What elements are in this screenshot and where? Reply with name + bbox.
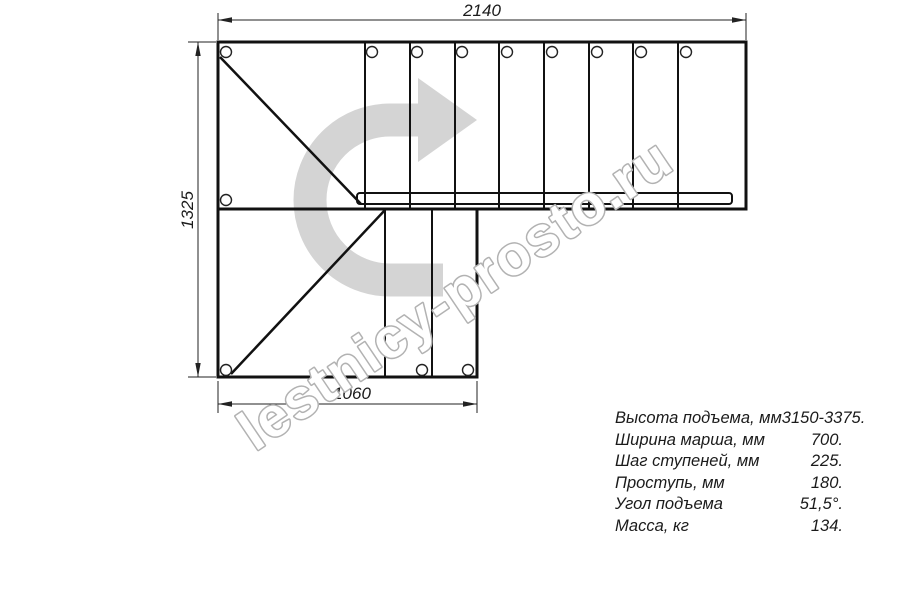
dim-arrow-icon (218, 401, 232, 406)
dimension-arrowheads (195, 17, 746, 406)
spec-value: 225. (811, 451, 843, 473)
dim-arrow-icon (218, 17, 232, 22)
spec-label: Проступь, мм (615, 473, 725, 495)
fastener-circle (502, 47, 513, 58)
fastener-circle (221, 195, 232, 206)
fastener-circle (412, 47, 423, 58)
fastener-circle (463, 365, 474, 376)
fastener-circle (221, 365, 232, 376)
dimension-lines (188, 13, 746, 413)
stair-plan-page: 2140 1325 1060 lestnicy-prosto.ru Высота… (0, 0, 900, 600)
spec-value: 51,5°. (800, 494, 843, 516)
fastener-circle (417, 365, 428, 376)
fastener-circle (457, 47, 468, 58)
spec-value: 700. (811, 430, 843, 452)
spec-row-flight-width: Ширина марша, мм 700. (615, 430, 843, 452)
spec-value: 134. (811, 516, 843, 538)
spec-row-mass: Масса, кг 134. (615, 516, 843, 538)
fastener-circle (592, 47, 603, 58)
turn-direction-arrow (310, 78, 477, 280)
turn-arrow-head-icon (418, 78, 477, 162)
spec-row-tread: Проступь, мм 180. (615, 473, 843, 495)
spec-label: Высота подъема, мм (615, 408, 782, 430)
spec-table: Высота подъема, мм 3150-3375. Ширина мар… (615, 408, 843, 538)
dimension-label-top: 2140 (462, 1, 501, 20)
spec-label: Масса, кг (615, 516, 689, 538)
spec-row-climb-angle: Угол подъема 51,5°. (615, 494, 843, 516)
spec-label: Ширина марша, мм (615, 430, 765, 452)
fastener-circle (681, 47, 692, 58)
fastener-circle (367, 47, 378, 58)
stair-plan-lines (218, 42, 746, 377)
dim-arrow-icon (463, 401, 477, 406)
spec-label: Шаг ступеней, мм (615, 451, 759, 473)
spec-label: Угол подъема (615, 494, 723, 516)
spec-value: 3150-3375. (782, 408, 866, 430)
fastener-circle (636, 47, 647, 58)
fastener-circle (547, 47, 558, 58)
dim-arrow-icon (732, 17, 746, 22)
spec-row-lift-height: Высота подъема, мм 3150-3375. (615, 408, 843, 430)
dimension-label-left: 1325 (178, 191, 197, 229)
dim-arrow-icon (195, 363, 200, 377)
spec-row-step-pitch: Шаг ступеней, мм 225. (615, 451, 843, 473)
fastener-circle (221, 47, 232, 58)
spec-value: 180. (811, 473, 843, 495)
dim-arrow-icon (195, 42, 200, 56)
